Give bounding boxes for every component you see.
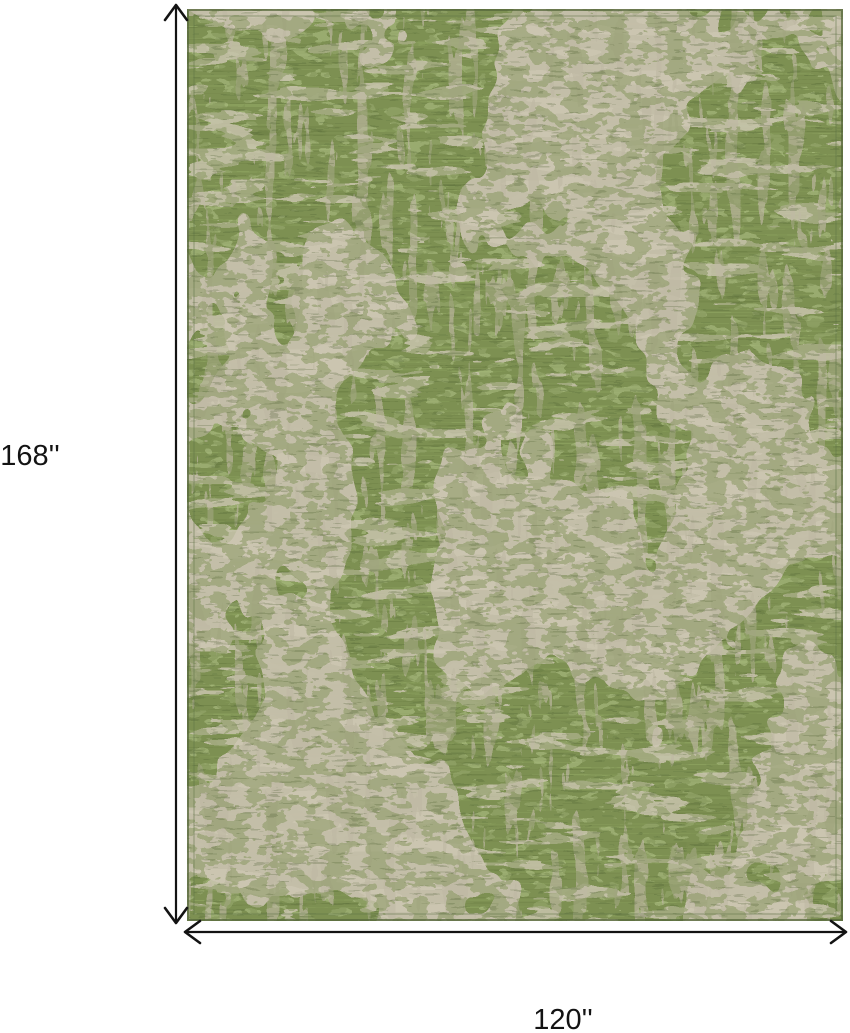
height-dimension-label: 168'' — [0, 442, 60, 471]
height-dimension-arrow — [165, 5, 187, 923]
arrow-right-icon — [831, 921, 846, 943]
arrow-left-icon — [185, 921, 200, 943]
rug-image — [187, 9, 843, 921]
width-dimension-arrow — [185, 921, 846, 943]
width-dimension-label: 120'' — [532, 1006, 594, 1033]
rug-pattern-svg — [187, 9, 843, 921]
arrow-down-icon — [165, 908, 187, 923]
rug-product-dimension-diagram: 168'' 120'' — [0, 0, 850, 1033]
rug-pattern-layer — [187, 9, 843, 921]
arrow-up-icon — [165, 5, 187, 20]
